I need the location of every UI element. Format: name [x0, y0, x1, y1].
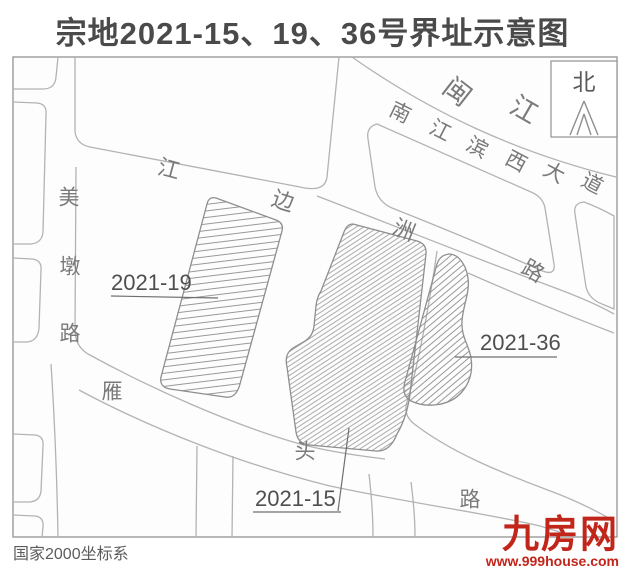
yantou-road-label: 雁: [102, 381, 123, 404]
parcel-boundary-map: 宗地2021-15、19、36号界址示意图: [0, 0, 625, 570]
meidun-road-label: 路: [60, 323, 81, 346]
map-frame: [13, 57, 617, 537]
compass: 北: [551, 61, 617, 137]
coordinate-system-note: 国家2000坐标系: [13, 540, 129, 564]
map-drawing: 2021-19 2021-15 2021-36 北 闽江南江滨西大道江边洲路美墩…: [0, 0, 625, 570]
parcel-label-2021-15: 2021-15: [255, 486, 336, 511]
north-label: 北: [573, 69, 596, 95]
site-watermark: 九房网 www.999house.com: [399, 516, 619, 568]
meidun-road-label: 美: [59, 187, 80, 210]
site-url: www.999house.com: [399, 554, 619, 568]
parcel-label-2021-19: 2021-19: [111, 270, 192, 295]
yantou-road-label: 路: [460, 489, 481, 512]
meidun-road-label: 墩: [60, 256, 81, 279]
yantou-road-label: 头: [295, 441, 316, 464]
parcel-label-2021-36: 2021-36: [480, 330, 561, 355]
site-logo: 九房网: [502, 515, 619, 554]
